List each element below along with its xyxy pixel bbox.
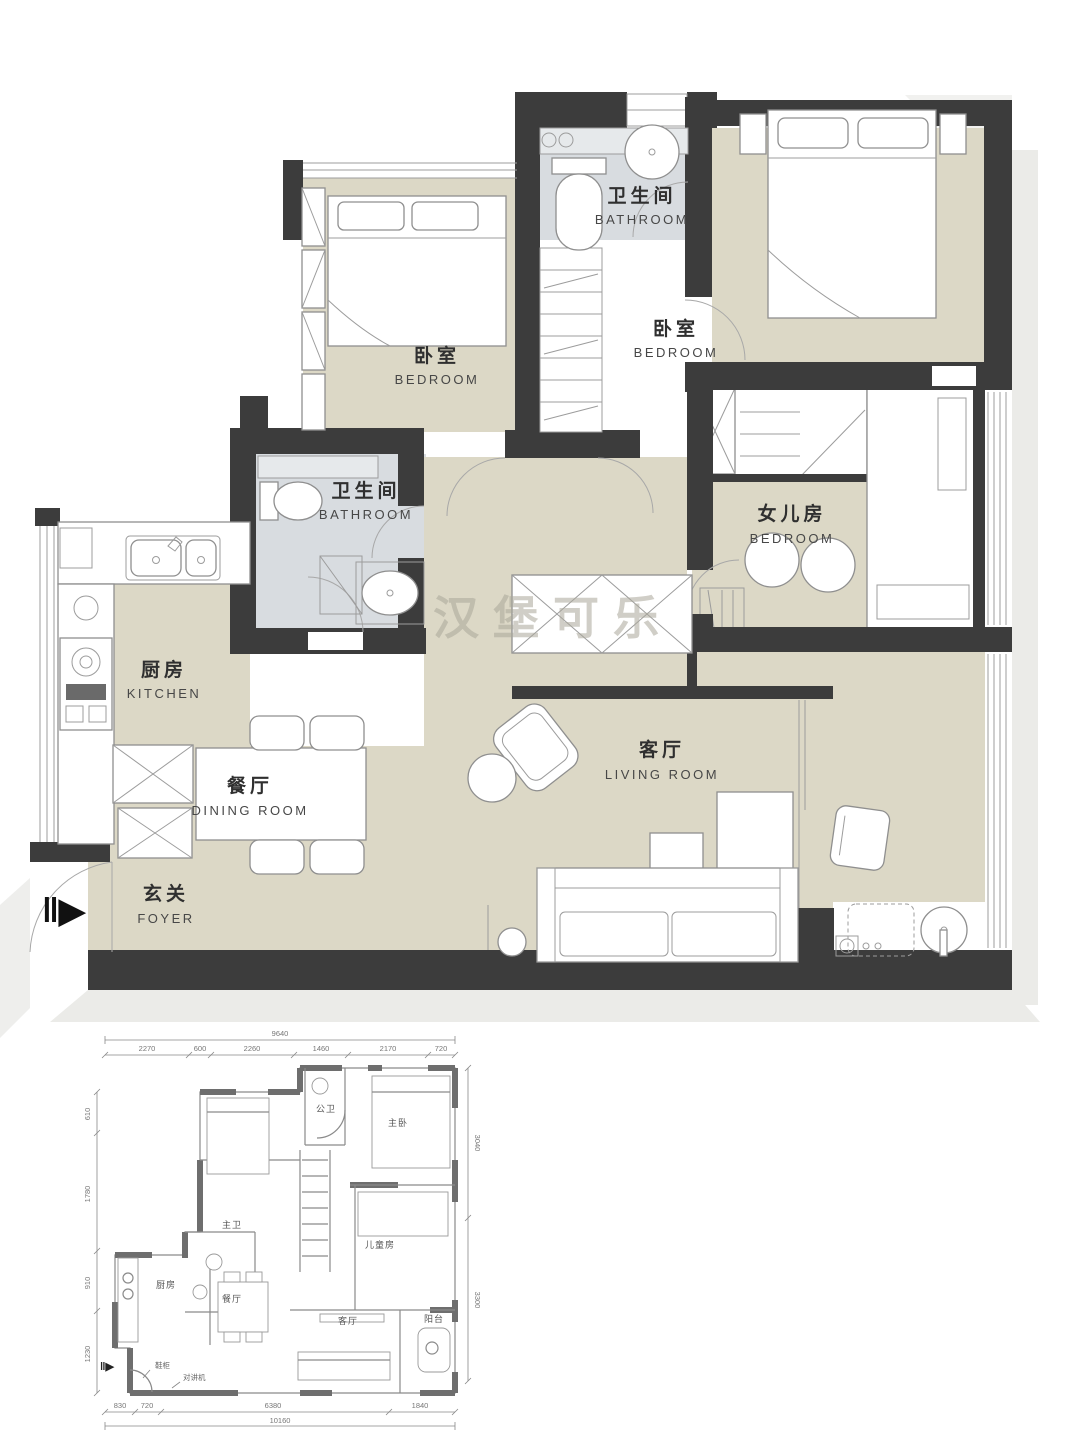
small-bath-master-label: 主卫: [222, 1219, 242, 1230]
dim-top-3: 1460: [313, 1044, 330, 1053]
living-label-en: LIVING ROOM: [605, 767, 719, 782]
bathroom-top-label-en: BATHROOM: [595, 212, 689, 227]
sofa: [298, 1352, 390, 1380]
living-label-zh: 客厅: [639, 738, 685, 761]
daughter-platform: [867, 385, 975, 630]
bathroom-mid-label-zh: 卫生间: [331, 479, 400, 502]
dim-bottom-1: 720: [141, 1401, 154, 1410]
basin: [625, 125, 679, 179]
small-kitchen-label: 厨房: [156, 1279, 176, 1290]
toilet: [206, 1254, 222, 1270]
dim-top-total: 9640: [272, 1029, 289, 1038]
closet-shaft: [540, 248, 602, 432]
bathroom-mid-label-en: BATHROOM: [319, 507, 413, 522]
bedroom-right-furniture: [740, 110, 966, 318]
small-master-label: 主卧: [388, 1117, 408, 1128]
kitchen-window: [40, 526, 54, 842]
sink: [186, 540, 216, 576]
master-bed: [372, 1076, 450, 1168]
armchair: [829, 805, 891, 872]
entry-arrow-icon: ‖▶: [42, 892, 87, 930]
dim-top-1: 600: [194, 1044, 207, 1053]
floor-plan-canvas: ‖▶ 卫生间 BATHROOM 卧室 BEDROOM 卧室 BEDROOM 女儿…: [0, 0, 1080, 1440]
bedroom-left-label-en: BEDROOM: [395, 372, 480, 387]
sink: [131, 540, 181, 576]
stool: [801, 538, 855, 592]
dim-top-2: 2260: [244, 1044, 261, 1053]
bedroom-right-label-zh: 卧室: [653, 317, 699, 340]
small-dining-label: 餐厅: [222, 1293, 242, 1304]
watermark: 汉堡可乐: [433, 592, 673, 644]
bedroom-right-label-en: BEDROOM: [634, 345, 719, 360]
dining-table: [218, 1282, 268, 1332]
dim-right-1: 3300: [473, 1292, 482, 1309]
small-entry-arrow-icon: ‖▶: [100, 1361, 114, 1373]
dim-left-1: 1780: [83, 1186, 92, 1203]
intercom-note: 对讲机: [183, 1372, 206, 1382]
dim-bottom-3: 1840: [412, 1401, 429, 1410]
square-table: [717, 792, 793, 870]
dim-left-2: 910: [83, 1277, 92, 1290]
kitchen-label-zh: 厨房: [141, 658, 187, 681]
right-window: [988, 392, 1006, 948]
foyer-label-zh: 玄关: [143, 882, 189, 905]
dim-top-4: 2170: [380, 1044, 397, 1053]
chair: [310, 840, 364, 874]
dim-top-5: 720: [435, 1044, 448, 1053]
kitchen-counter: [118, 1258, 138, 1342]
basin: [193, 1285, 207, 1299]
small-bath-public-label: 公卫: [316, 1104, 336, 1114]
floor-plan-page: ‖▶ 卫生间 BATHROOM 卧室 BEDROOM 卧室 BEDROOM 女儿…: [0, 0, 1080, 1440]
floor-lamp: [498, 928, 526, 956]
chair: [250, 716, 304, 750]
dim-top-0: 2270: [139, 1044, 156, 1053]
daughter-room-label-zh: 女儿房: [757, 502, 826, 525]
tv-partition-wall: [512, 686, 833, 699]
dim-bottom-0: 830: [114, 1401, 127, 1410]
chair: [310, 716, 364, 750]
bathroom-top-label-zh: 卫生间: [607, 184, 676, 207]
dim-left-3: 1230: [83, 1346, 92, 1363]
bedroom-left-window: [303, 163, 517, 178]
small-plan: ‖▶ 鞋柜 对讲机 公卫 主卧 主卫 儿童房 厨房 餐厅 客厅 阳台 9640 …: [83, 1029, 482, 1430]
daughter-room-label-en: BEDROOM: [750, 531, 835, 546]
shoe-cabinet-note: 鞋柜: [155, 1360, 170, 1370]
dim-bottom-2: 6380: [265, 1401, 282, 1410]
small-living-label: 客厅: [338, 1315, 358, 1326]
toilet: [274, 482, 322, 520]
kids-bed: [358, 1192, 448, 1236]
dining-table: [196, 748, 366, 840]
dim-left-0: 610: [83, 1108, 92, 1121]
dining-label-en: DINING ROOM: [191, 803, 308, 818]
dim-bottom-total: 10160: [270, 1416, 291, 1425]
chair: [250, 840, 304, 874]
foyer-label-en: FOYER: [137, 911, 194, 926]
kitchen-label-en: KITCHEN: [127, 686, 202, 701]
bed: [207, 1098, 269, 1174]
toilet: [312, 1078, 328, 1094]
small-balcony-label: 阳台: [424, 1313, 444, 1324]
ottoman: [468, 754, 516, 802]
bedroom-left-label-zh: 卧室: [414, 344, 460, 367]
tub: [418, 1328, 450, 1372]
dining-label-zh: 餐厅: [227, 774, 273, 797]
tub-basin: [362, 571, 418, 615]
dim-right-0: 3040: [473, 1135, 482, 1152]
daughter-partition-wall: [692, 474, 867, 482]
small-kids-label: 儿童房: [365, 1239, 395, 1250]
